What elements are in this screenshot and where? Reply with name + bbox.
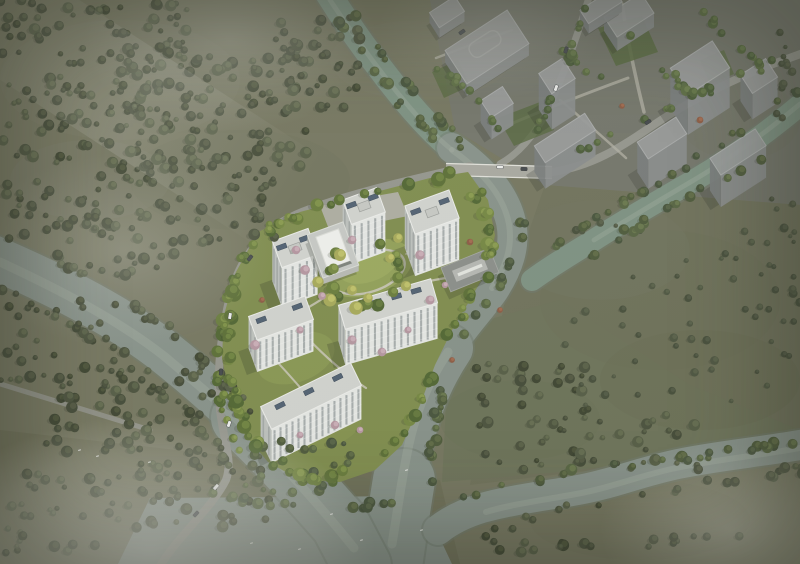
rendering-canvas	[0, 0, 800, 564]
car	[219, 369, 223, 376]
car	[497, 165, 504, 169]
site-aerial-rendering	[0, 0, 800, 564]
car	[521, 167, 528, 171]
